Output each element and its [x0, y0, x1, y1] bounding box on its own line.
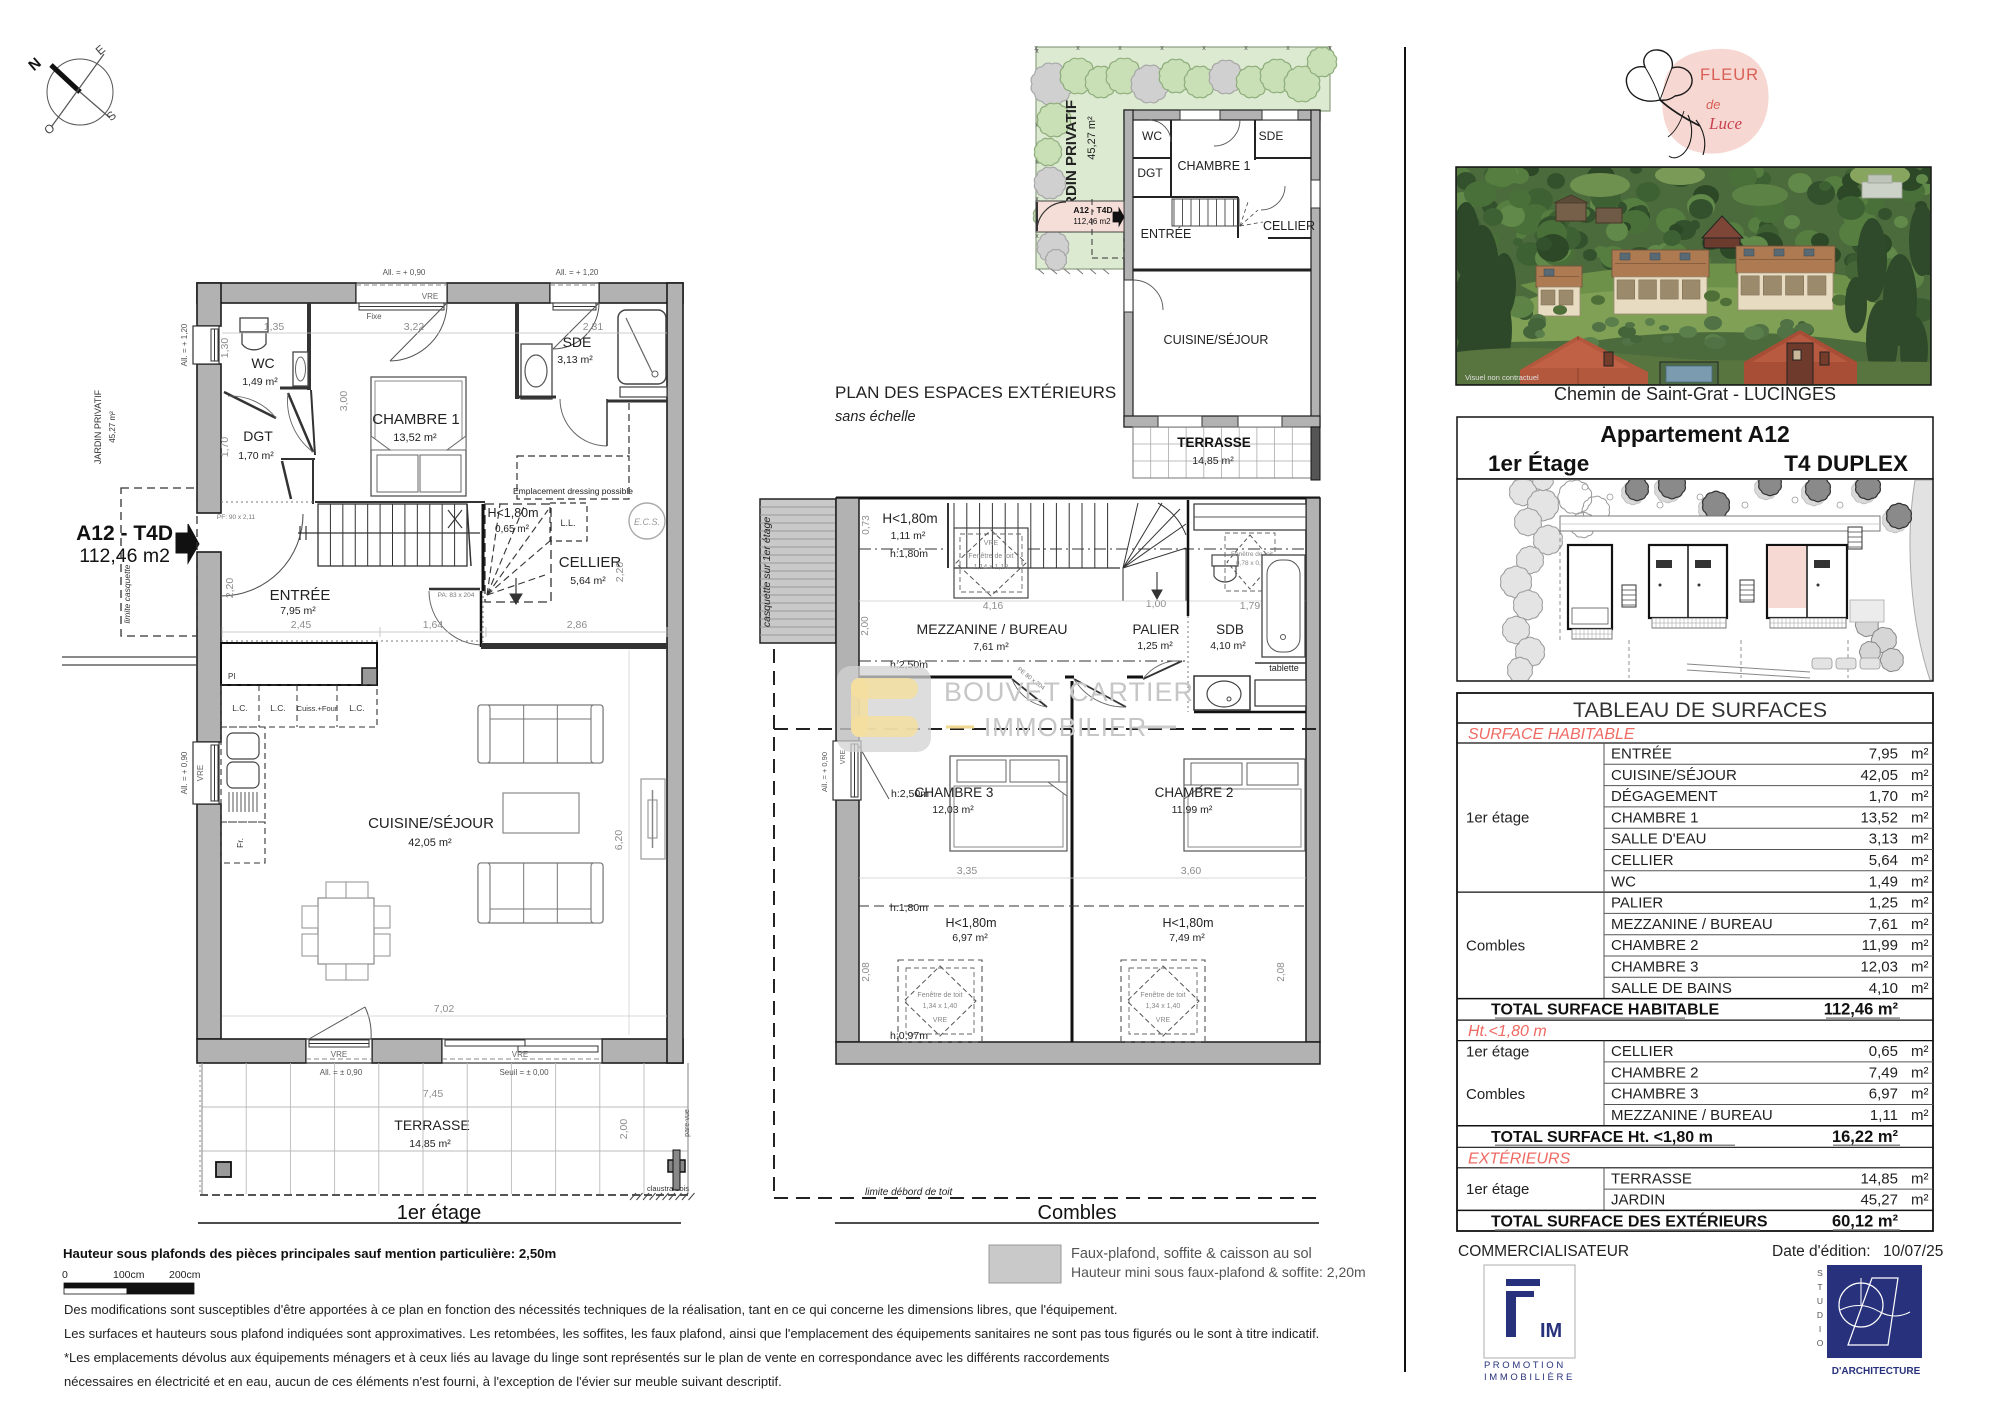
svg-text:3,60: 3,60	[1181, 865, 1202, 877]
svg-text:Combles: Combles	[1466, 937, 1525, 954]
svg-text:1,79: 1,79	[1240, 600, 1261, 612]
svg-text:Combles: Combles	[1038, 1202, 1117, 1224]
svg-text:D: D	[1817, 1310, 1823, 1320]
svg-text:CHAMBRE 2: CHAMBRE 2	[1155, 785, 1234, 800]
svg-text:H<1,80m: H<1,80m	[945, 916, 996, 930]
svg-text:WC: WC	[251, 355, 274, 371]
svg-text:14,85: 14,85	[1860, 1170, 1898, 1187]
svg-text:TOTAL SURFACE Ht. <1,80 m: TOTAL SURFACE Ht. <1,80 m	[1491, 1129, 1713, 1146]
svg-text:1,11 m²: 1,11 m²	[891, 530, 926, 542]
svg-text:11,99: 11,99	[1862, 937, 1898, 954]
svg-text:SALLE DE BAINS: SALLE DE BAINS	[1611, 980, 1732, 997]
svg-text:1er Étage: 1er Étage	[1488, 451, 1589, 476]
svg-text:A12 - T4D: A12 - T4D	[76, 522, 173, 545]
svg-text:60,12 m²: 60,12 m²	[1832, 1212, 1899, 1230]
svg-text:A12 - T4D: A12 - T4D	[1073, 205, 1112, 215]
svg-text:All. = + 0,90: All. = + 0,90	[383, 268, 426, 277]
svg-text:tablette: tablette	[1269, 663, 1299, 673]
svg-text:P R O M O T I O N: P R O M O T I O N	[1484, 1360, 1563, 1371]
svg-text:CELLIER: CELLIER	[1263, 219, 1315, 233]
svg-text:DÉGAGEMENT: DÉGAGEMENT	[1611, 788, 1718, 805]
svg-text:0,73: 0,73	[861, 515, 872, 535]
svg-text:CUISINE/SÉJOUR: CUISINE/SÉJOUR	[368, 815, 494, 832]
svg-text:x: x	[1076, 45, 1080, 52]
svg-text:ENTRÉE: ENTRÉE	[270, 587, 331, 604]
svg-text:D'ARCHITECTURE: D'ARCHITECTURE	[1832, 1366, 1921, 1377]
svg-text:45,27 m²: 45,27 m²	[108, 411, 117, 443]
svg-text:42,05: 42,05	[1860, 767, 1898, 784]
svg-text:PLAN DES ESPACES EXTÉRIEURS: PLAN DES ESPACES EXTÉRIEURS	[835, 383, 1116, 402]
svg-text:12,03: 12,03	[1860, 959, 1898, 976]
svg-text:L.C.: L.C.	[349, 703, 365, 713]
svg-text:SALLE D'EAU: SALLE D'EAU	[1611, 831, 1706, 848]
svg-text:2,00: 2,00	[618, 1119, 630, 1140]
svg-text:x: x	[1118, 45, 1122, 52]
svg-text:FLEUR: FLEUR	[1700, 66, 1759, 84]
svg-text:*Les emplacements dévolus aux: *Les emplacements dévolus aux équipement…	[64, 1350, 1110, 1365]
svg-text:h:1,80m: h:1,80m	[890, 902, 928, 914]
svg-text:200cm: 200cm	[169, 1269, 201, 1281]
svg-text:JARDIN: JARDIN	[1611, 1192, 1665, 1209]
svg-text:sans échelle: sans échelle	[835, 409, 916, 425]
svg-text:16,22 m²: 16,22 m²	[1832, 1128, 1899, 1146]
svg-text:I: I	[1819, 1324, 1821, 1334]
svg-text:3,00: 3,00	[338, 391, 350, 412]
svg-text:x: x	[1160, 45, 1164, 52]
svg-text:5,64: 5,64	[1869, 852, 1898, 869]
svg-text:CHAMBRE 1: CHAMBRE 1	[1611, 809, 1699, 826]
svg-text:2,31: 2,31	[583, 321, 604, 333]
svg-text:nécessaires en électricité et: nécessaires en électricité et en eau, au…	[64, 1374, 782, 1389]
svg-text:1,34 x 1,40: 1,34 x 1,40	[923, 1003, 958, 1010]
svg-text:Appartement A12: Appartement A12	[1600, 421, 1790, 447]
svg-text:de: de	[1706, 97, 1720, 112]
svg-text:13,52: 13,52	[1860, 809, 1898, 826]
svg-text:All. = + 1,20: All. = + 1,20	[180, 323, 189, 366]
svg-text:6,97 m²: 6,97 m²	[952, 932, 988, 944]
svg-text:m²: m²	[1911, 788, 1929, 805]
svg-text:VRE: VRE	[512, 1050, 528, 1059]
svg-text:1er étage: 1er étage	[1466, 1044, 1529, 1061]
svg-text:12,03 m²: 12,03 m²	[932, 804, 974, 816]
svg-text:H<1,80m: H<1,80m	[1162, 916, 1213, 930]
svg-text:PF: 90 x 2,11: PF: 90 x 2,11	[217, 514, 256, 521]
svg-text:0,65 m²: 0,65 m²	[495, 524, 530, 535]
svg-text:U: U	[1817, 1296, 1823, 1306]
svg-text:Des modifications sont suscept: Des modifications sont susceptibles d'êt…	[64, 1302, 1118, 1317]
svg-text:1,49 m²: 1,49 m²	[242, 376, 278, 388]
svg-text:2,20: 2,20	[614, 562, 626, 583]
svg-text:CUISINE/SÉJOUR: CUISINE/SÉJOUR	[1611, 767, 1737, 784]
svg-text:13,52 m²: 13,52 m²	[393, 432, 437, 444]
svg-text:BOUVET CARTIER: BOUVET CARTIER	[944, 677, 1194, 707]
svg-text:CHAMBRE 3: CHAMBRE 3	[915, 785, 994, 800]
svg-text:VRE: VRE	[331, 1050, 347, 1059]
svg-text:All. = ± 0,90: All. = ± 0,90	[320, 1068, 363, 1077]
svg-text:PALIER: PALIER	[1611, 895, 1663, 912]
svg-text:2,20: 2,20	[224, 578, 236, 599]
svg-text:H<1,80m: H<1,80m	[487, 506, 538, 520]
svg-text:Fenêtre de toit: Fenêtre de toit	[917, 992, 962, 999]
svg-text:CHAMBRE 2: CHAMBRE 2	[1611, 937, 1699, 954]
svg-text:limite débord de toit: limite débord de toit	[865, 1187, 953, 1198]
svg-text:TERRASSE: TERRASSE	[1177, 435, 1251, 450]
svg-text:m²: m²	[1911, 916, 1929, 933]
svg-text:3,13: 3,13	[1869, 831, 1898, 848]
svg-text:3,13 m²: 3,13 m²	[557, 354, 593, 366]
svg-text:L.C.: L.C.	[270, 703, 286, 713]
svg-text:6,97: 6,97	[1869, 1086, 1898, 1103]
svg-text:Date d'édition:: Date d'édition:	[1772, 1243, 1871, 1260]
svg-text:T4 DUPLEX: T4 DUPLEX	[1784, 451, 1908, 476]
svg-text:7,61: 7,61	[1869, 916, 1898, 933]
svg-text:Ht.<1,80 m: Ht.<1,80 m	[1468, 1023, 1547, 1040]
svg-text:S: S	[1817, 1268, 1823, 1278]
svg-text:1er étage: 1er étage	[397, 1202, 482, 1224]
svg-text:m²: m²	[1911, 1086, 1929, 1103]
svg-text:h:1,80m: h:1,80m	[890, 548, 928, 560]
svg-text:VRE: VRE	[422, 292, 438, 301]
svg-text:1,14 x 1,18: 1,14 x 1,18	[974, 564, 1009, 571]
svg-text:7,45: 7,45	[423, 1088, 444, 1100]
svg-text:m²: m²	[1911, 852, 1929, 869]
svg-text:Les surfaces et hauteurs sous: Les surfaces et hauteurs sous plafond in…	[64, 1326, 1319, 1341]
svg-text:CHAMBRE 2: CHAMBRE 2	[1611, 1064, 1699, 1081]
svg-text:2,86: 2,86	[567, 619, 588, 631]
svg-text:7,95 m²: 7,95 m²	[280, 605, 316, 617]
svg-text:m²: m²	[1911, 1064, 1929, 1081]
svg-text:H<1,80m: H<1,80m	[882, 511, 937, 526]
svg-text:3,35: 3,35	[957, 865, 978, 877]
svg-text:Chemin de Saint-Grat - LUCINGE: Chemin de Saint-Grat - LUCINGES	[1554, 384, 1836, 404]
svg-text:VRE: VRE	[984, 540, 999, 547]
svg-text:Fixe: Fixe	[366, 312, 382, 321]
svg-text:m²: m²	[1911, 831, 1929, 848]
svg-text:IM: IM	[1540, 1320, 1562, 1342]
svg-text:VRE: VRE	[196, 765, 205, 781]
svg-text:m²: m²	[1911, 1107, 1929, 1124]
svg-text:7,02: 7,02	[434, 1003, 455, 1015]
svg-text:claustra bois: claustra bois	[647, 1184, 689, 1193]
svg-text:1,49: 1,49	[1869, 873, 1898, 890]
svg-text:5,64 m²: 5,64 m²	[570, 575, 606, 587]
svg-text:m²: m²	[1911, 809, 1929, 826]
svg-text:WC: WC	[1611, 873, 1636, 890]
svg-text:TOTAL SURFACE DES EXTÉRIEURS: TOTAL SURFACE DES EXTÉRIEURS	[1491, 1211, 1768, 1230]
svg-text:Fr.: Fr.	[235, 838, 245, 848]
svg-text:Combles: Combles	[1466, 1086, 1525, 1103]
svg-text:MEZZANINE / BUREAU: MEZZANINE / BUREAU	[1611, 916, 1773, 933]
svg-text:1,70: 1,70	[219, 437, 231, 458]
svg-text:m²: m²	[1911, 980, 1929, 997]
svg-text:CHAMBRE 1: CHAMBRE 1	[1178, 159, 1251, 173]
svg-text:CELLIER: CELLIER	[559, 554, 622, 571]
svg-text:m²: m²	[1911, 767, 1929, 784]
svg-text:L.L.: L.L.	[560, 518, 575, 528]
svg-text:1,11: 1,11	[1870, 1107, 1898, 1124]
svg-text:1,34 x 1,40: 1,34 x 1,40	[1146, 1003, 1181, 1010]
svg-text:1,70 m²: 1,70 m²	[238, 450, 274, 462]
svg-text:2,45: 2,45	[291, 619, 312, 631]
svg-text:L.C.: L.C.	[232, 703, 248, 713]
svg-text:SURFACE HABITABLE: SURFACE HABITABLE	[1468, 726, 1635, 743]
svg-text:m²: m²	[1911, 873, 1929, 890]
svg-text:1er étage: 1er étage	[1466, 810, 1529, 827]
svg-text:SDE: SDE	[1259, 129, 1284, 143]
svg-text:T: T	[1817, 1282, 1822, 1292]
svg-text:CHAMBRE 3: CHAMBRE 3	[1611, 959, 1699, 976]
svg-text:IMMOBILIER: IMMOBILIER	[984, 712, 1147, 742]
svg-text:Emplacement dressing possible: Emplacement dressing possible	[513, 486, 633, 496]
svg-text:Fenêtre de toit: Fenêtre de toit	[968, 553, 1013, 560]
svg-text:7,61 m²: 7,61 m²	[973, 641, 1009, 653]
svg-text:Fenêtre de toit: Fenêtre de toit	[1140, 992, 1185, 999]
svg-text:4,16: 4,16	[983, 600, 1004, 612]
svg-text:SDB: SDB	[1216, 622, 1244, 637]
svg-text:7,49 m²: 7,49 m²	[1169, 932, 1205, 944]
svg-text:Luce: Luce	[1708, 114, 1743, 133]
svg-text:42,05 m²: 42,05 m²	[408, 837, 452, 849]
svg-text:x: x	[1035, 48, 1039, 55]
svg-text:m²: m²	[1911, 1043, 1929, 1060]
svg-text:DGT: DGT	[243, 428, 273, 444]
svg-text:1er étage: 1er étage	[1466, 1181, 1529, 1198]
svg-text:112,46 m²: 112,46 m²	[1824, 1001, 1899, 1019]
svg-text:All. = + 1,20: All. = + 1,20	[556, 268, 599, 277]
svg-text:m²: m²	[1911, 1170, 1929, 1187]
svg-text:Faux-plafond, soffite & caisso: Faux-plafond, soffite & caisson au sol	[1071, 1246, 1312, 1262]
svg-text:7,95: 7,95	[1869, 746, 1898, 763]
svg-text:CUISINE/SÉJOUR: CUISINE/SÉJOUR	[1164, 332, 1269, 347]
svg-text:x: x	[1286, 45, 1290, 52]
svg-text:Visuel non contractuel: Visuel non contractuel	[1465, 373, 1539, 382]
svg-text:1,25: 1,25	[1869, 895, 1898, 912]
svg-text:SDE: SDE	[563, 334, 592, 350]
svg-text:100cm: 100cm	[113, 1269, 145, 1281]
svg-text:x: x	[1244, 45, 1248, 52]
svg-text:1,00: 1,00	[1146, 598, 1167, 610]
svg-text:14,85 m²: 14,85 m²	[1192, 455, 1234, 467]
svg-text:TERRASSE: TERRASSE	[1611, 1170, 1692, 1187]
svg-text:ENTRÉE: ENTRÉE	[1611, 746, 1672, 763]
svg-text:45,27: 45,27	[1860, 1192, 1898, 1209]
svg-text:Hauteur sous plafonds des pièc: Hauteur sous plafonds des pièces princip…	[63, 1246, 556, 1261]
svg-text:DGT: DGT	[1137, 166, 1163, 180]
svg-text:MEZZANINE / BUREAU: MEZZANINE / BUREAU	[1611, 1107, 1773, 1124]
svg-text:m²: m²	[1911, 1192, 1929, 1209]
svg-text:EXTÉRIEURS: EXTÉRIEURS	[1468, 1148, 1571, 1167]
svg-text:limite casquette: limite casquette	[122, 564, 132, 623]
svg-text:COMMERCIALISATEUR: COMMERCIALISATEUR	[1458, 1243, 1629, 1260]
svg-text:WC: WC	[1142, 129, 1162, 143]
svg-text:m²: m²	[1911, 959, 1929, 976]
svg-text:TABLEAU DE SURFACES: TABLEAU DE SURFACES	[1573, 698, 1827, 722]
svg-text:CELLIER: CELLIER	[1611, 852, 1674, 869]
svg-text:1,70: 1,70	[1869, 788, 1898, 805]
svg-text:O: O	[1817, 1338, 1824, 1348]
svg-text:I M M O B I L I È R E: I M M O B I L I È R E	[1484, 1372, 1572, 1383]
svg-text:m²: m²	[1911, 746, 1929, 763]
svg-text:4,10: 4,10	[1869, 980, 1898, 997]
svg-text:h:0,97m: h:0,97m	[890, 1030, 928, 1042]
svg-text:VRE: VRE	[1156, 1017, 1171, 1024]
svg-text:TOTAL SURFACE HABITABLE: TOTAL SURFACE HABITABLE	[1491, 1002, 1719, 1019]
svg-text:2,08: 2,08	[861, 962, 872, 982]
svg-text:E.C.S.: E.C.S.	[634, 517, 660, 527]
svg-text:112,46 m2: 112,46 m2	[79, 545, 170, 567]
svg-text:ENTRÉE: ENTRÉE	[1141, 226, 1192, 241]
svg-text:PA: 83 x 204: PA: 83 x 204	[438, 592, 475, 599]
svg-text:0,65: 0,65	[1869, 1043, 1898, 1060]
svg-text:2,08: 2,08	[1276, 962, 1287, 982]
svg-text:x: x	[1035, 233, 1039, 240]
svg-text:All. = + 0,90: All. = + 0,90	[820, 752, 829, 792]
svg-text:45,27 m²: 45,27 m²	[1086, 116, 1098, 160]
svg-text:JARDIN PRIVATIF: JARDIN PRIVATIF	[93, 389, 103, 464]
svg-text:1,25 m²: 1,25 m²	[1137, 640, 1173, 652]
svg-text:CELLIER: CELLIER	[1611, 1043, 1674, 1060]
svg-text:pare-vue: pare-vue	[684, 1109, 691, 1137]
svg-text:TERRASSE: TERRASSE	[394, 1117, 469, 1133]
svg-text:10/07/25: 10/07/25	[1883, 1243, 1943, 1260]
svg-text:1,35: 1,35	[264, 321, 285, 333]
svg-text:0: 0	[62, 1269, 68, 1281]
svg-text:PALIER: PALIER	[1132, 622, 1179, 637]
svg-text:VRE: VRE	[933, 1017, 948, 1024]
svg-text:m²: m²	[1911, 895, 1929, 912]
svg-text:casquette sur 1er étage: casquette sur 1er étage	[761, 517, 773, 627]
svg-text:14,85 m²: 14,85 m²	[409, 1138, 451, 1150]
svg-text:All. = + 0,90: All. = + 0,90	[180, 751, 189, 794]
svg-text:3,22: 3,22	[404, 321, 425, 333]
svg-text:1,30: 1,30	[219, 338, 231, 359]
svg-text:6,20: 6,20	[613, 830, 625, 851]
svg-text:CHAMBRE 3: CHAMBRE 3	[1611, 1086, 1699, 1103]
svg-text:2,00: 2,00	[860, 616, 871, 636]
svg-text:7,49: 7,49	[1869, 1064, 1898, 1081]
svg-text:1,64: 1,64	[423, 619, 444, 631]
svg-text:MEZZANINE / BUREAU: MEZZANINE / BUREAU	[917, 621, 1068, 637]
svg-text:VRE: VRE	[840, 749, 847, 764]
svg-text:PI: PI	[228, 672, 236, 681]
svg-text:Cuiss.+Four: Cuiss.+Four	[297, 704, 338, 713]
svg-text:Hauteur mini sous faux-plafond: Hauteur mini sous faux-plafond & soffite…	[1071, 1264, 1366, 1280]
svg-text:4,10 m²: 4,10 m²	[1210, 640, 1246, 652]
svg-text:x: x	[1202, 45, 1206, 52]
svg-text:CHAMBRE 1: CHAMBRE 1	[372, 411, 460, 428]
svg-text:m²: m²	[1911, 937, 1929, 954]
svg-text:11,99 m²: 11,99 m²	[1172, 804, 1213, 816]
svg-text:Seuil = ± 0,00: Seuil = ± 0,00	[499, 1068, 549, 1077]
